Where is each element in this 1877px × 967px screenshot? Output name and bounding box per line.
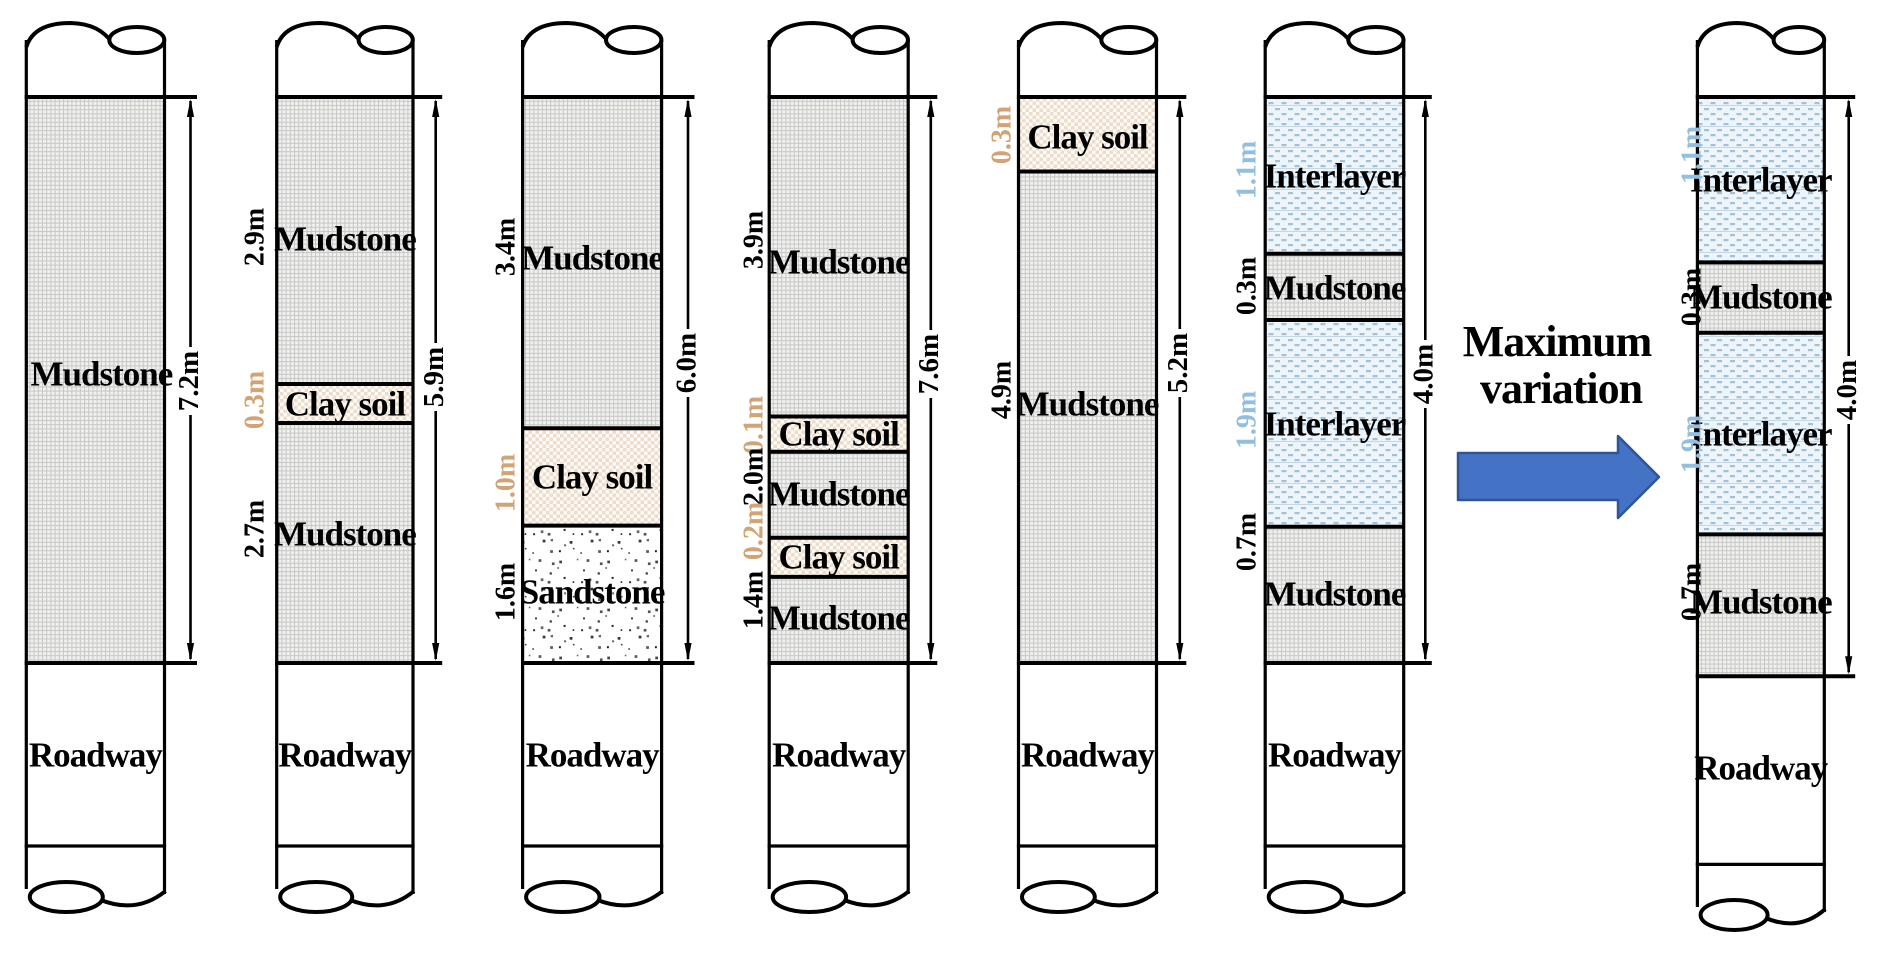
svg-text:Mudstone: Mudstone <box>1017 385 1159 424</box>
svg-text:Roadway: Roadway <box>526 736 661 775</box>
svg-text:Interlayer: Interlayer <box>1264 405 1406 444</box>
svg-text:6.0m: 6.0m <box>670 333 702 393</box>
svg-text:Mudstone: Mudstone <box>274 515 416 554</box>
svg-text:0.3m: 0.3m <box>1232 257 1263 315</box>
svg-text:1.1m: 1.1m <box>1232 141 1263 199</box>
svg-text:Mudstone: Mudstone <box>768 243 910 282</box>
svg-text:Mudstone: Mudstone <box>31 355 173 394</box>
svg-text:2.0m: 2.0m <box>739 448 770 506</box>
svg-text:1.1m: 1.1m <box>1677 126 1708 184</box>
svg-text:Maximum: Maximum <box>1463 317 1652 366</box>
svg-text:1.0m: 1.0m <box>491 454 522 512</box>
svg-text:1.9m: 1.9m <box>1232 391 1263 449</box>
svg-text:Clay soil: Clay soil <box>779 538 901 577</box>
svg-text:Mudstone: Mudstone <box>1264 269 1406 308</box>
svg-text:Roadway: Roadway <box>1021 736 1156 775</box>
svg-text:0.3m: 0.3m <box>240 371 271 429</box>
svg-text:Sandstone: Sandstone <box>520 573 665 612</box>
svg-text:0.1m: 0.1m <box>739 396 770 454</box>
svg-text:Roadway: Roadway <box>29 736 164 775</box>
svg-text:0.3m: 0.3m <box>1677 268 1708 326</box>
svg-text:Interlayer: Interlayer <box>1690 161 1832 200</box>
svg-text:Mudstone: Mudstone <box>1264 575 1406 614</box>
svg-text:Mudstone: Mudstone <box>274 220 416 259</box>
svg-text:Clay soil: Clay soil <box>285 385 407 424</box>
svg-text:0.3m: 0.3m <box>987 106 1018 164</box>
svg-text:0.7m: 0.7m <box>1232 513 1263 571</box>
svg-text:2.7m: 2.7m <box>240 500 271 558</box>
svg-text:Mudstone: Mudstone <box>1690 583 1832 622</box>
svg-text:1.9m: 1.9m <box>1677 415 1708 473</box>
svg-text:Clay soil: Clay soil <box>532 458 654 497</box>
svg-text:5.9m: 5.9m <box>418 347 450 407</box>
svg-text:Mudstone: Mudstone <box>768 475 910 514</box>
svg-text:7.6m: 7.6m <box>913 334 945 394</box>
svg-text:Clay soil: Clay soil <box>1027 118 1149 157</box>
svg-text:Roadway: Roadway <box>1268 736 1403 775</box>
svg-text:0.7m: 0.7m <box>1677 563 1708 621</box>
svg-text:Interlayer: Interlayer <box>1264 157 1406 196</box>
svg-text:4.0m: 4.0m <box>1408 344 1440 404</box>
svg-text:7.2m: 7.2m <box>173 351 205 411</box>
svg-text:Mudstone: Mudstone <box>521 239 663 278</box>
svg-text:0.2m: 0.2m <box>739 502 770 560</box>
svg-text:5.2m: 5.2m <box>1162 333 1194 393</box>
svg-text:Mudstone: Mudstone <box>768 599 910 638</box>
svg-text:3.9m: 3.9m <box>739 211 770 269</box>
svg-text:Clay soil: Clay soil <box>779 415 901 454</box>
svg-text:Roadway: Roadway <box>772 736 907 775</box>
svg-text:4.9m: 4.9m <box>987 361 1018 419</box>
svg-text:4.0m: 4.0m <box>1831 360 1863 420</box>
svg-text:Roadway: Roadway <box>1694 749 1829 788</box>
svg-text:1.6m: 1.6m <box>491 563 522 621</box>
svg-text:Mudstone: Mudstone <box>1690 278 1832 317</box>
svg-text:1.4m: 1.4m <box>739 571 770 629</box>
svg-text:Roadway: Roadway <box>278 736 413 775</box>
svg-text:Interlayer: Interlayer <box>1690 415 1832 454</box>
svg-text:2.9m: 2.9m <box>240 208 271 266</box>
svg-text:3.4m: 3.4m <box>491 218 522 276</box>
svg-text:variation: variation <box>1480 364 1643 413</box>
